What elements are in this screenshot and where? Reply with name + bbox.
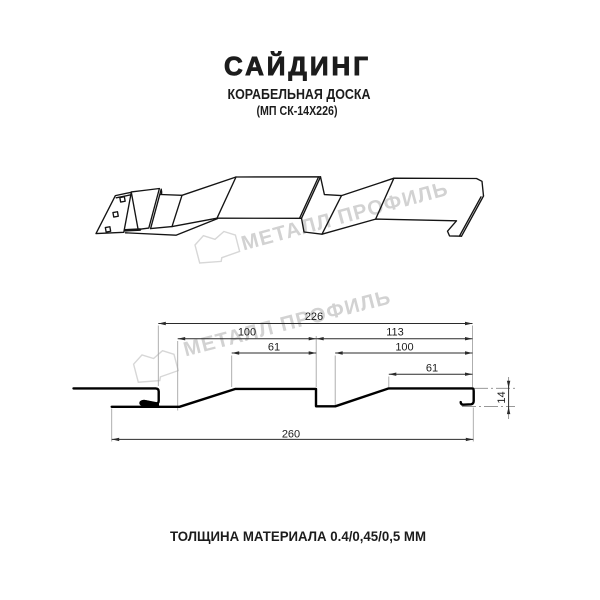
svg-text:(МП СК-14Х226): (МП СК-14Х226) [257, 104, 338, 118]
svg-text:100: 100 [395, 342, 413, 354]
svg-text:61: 61 [268, 342, 280, 354]
svg-text:ТОЛЩИНА МАТЕРИАЛА 0.4/0,45/0,5: ТОЛЩИНА МАТЕРИАЛА 0.4/0,45/0,5 ММ [170, 528, 426, 544]
svg-text:САЙДИНГ: САЙДИНГ [224, 51, 368, 81]
svg-text:14: 14 [496, 391, 508, 403]
svg-text:МЕТАЛЛ ПРОФИЛЬ: МЕТАЛЛ ПРОФИЛЬ [239, 177, 451, 255]
svg-text:КОРАБЕЛЬНАЯ ДОСКА: КОРАБЕЛЬНАЯ ДОСКА [228, 86, 371, 103]
svg-text:113: 113 [386, 327, 404, 339]
svg-text:260: 260 [282, 428, 300, 440]
svg-text:61: 61 [426, 363, 438, 375]
svg-text:226: 226 [305, 311, 323, 323]
svg-text:100: 100 [238, 327, 256, 339]
